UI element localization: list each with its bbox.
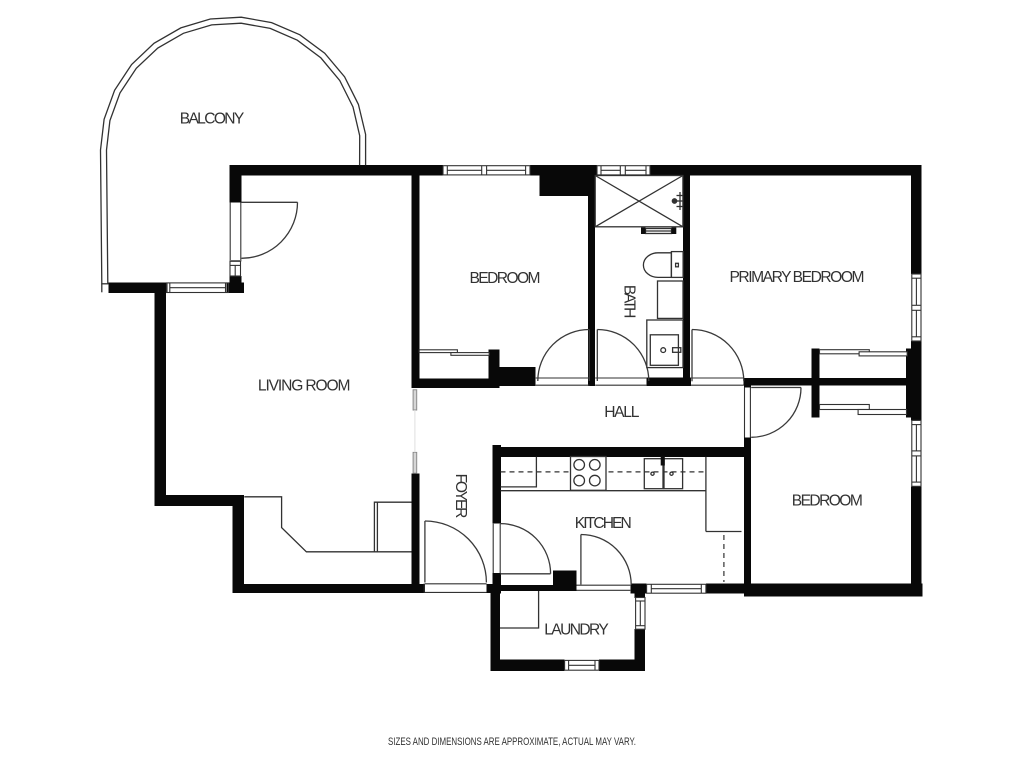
svg-text:KITCHEN: KITCHEN xyxy=(575,515,632,532)
svg-text:HALL: HALL xyxy=(604,404,640,421)
svg-text:FOYER: FOYER xyxy=(452,474,469,519)
svg-text:BEDROOM: BEDROOM xyxy=(792,493,863,510)
svg-text:LIVING ROOM: LIVING ROOM xyxy=(258,378,351,395)
svg-text:BALCONY: BALCONY xyxy=(180,111,245,128)
svg-text:BATH: BATH xyxy=(621,285,638,319)
svg-text:PRIMARY BEDROOM: PRIMARY BEDROOM xyxy=(729,269,864,286)
svg-text:LAUNDRY: LAUNDRY xyxy=(544,622,609,639)
svg-text:BEDROOM: BEDROOM xyxy=(469,270,540,287)
svg-text:SIZES AND DIMENSIONS ARE APPRO: SIZES AND DIMENSIONS ARE APPROXIMATE, AC… xyxy=(388,736,636,748)
